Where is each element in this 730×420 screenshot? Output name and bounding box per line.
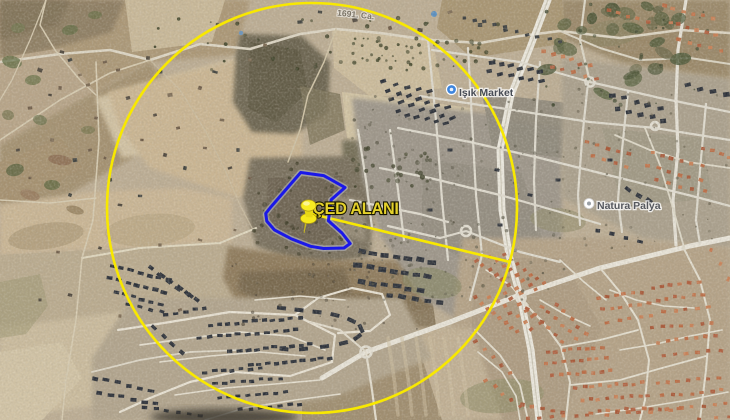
svg-text:Işık Market: Işık Market bbox=[459, 87, 514, 99]
svg-text:ÇED ALANI: ÇED ALANI bbox=[313, 200, 399, 218]
svg-text:Natura Palya: Natura Palya bbox=[597, 200, 661, 212]
